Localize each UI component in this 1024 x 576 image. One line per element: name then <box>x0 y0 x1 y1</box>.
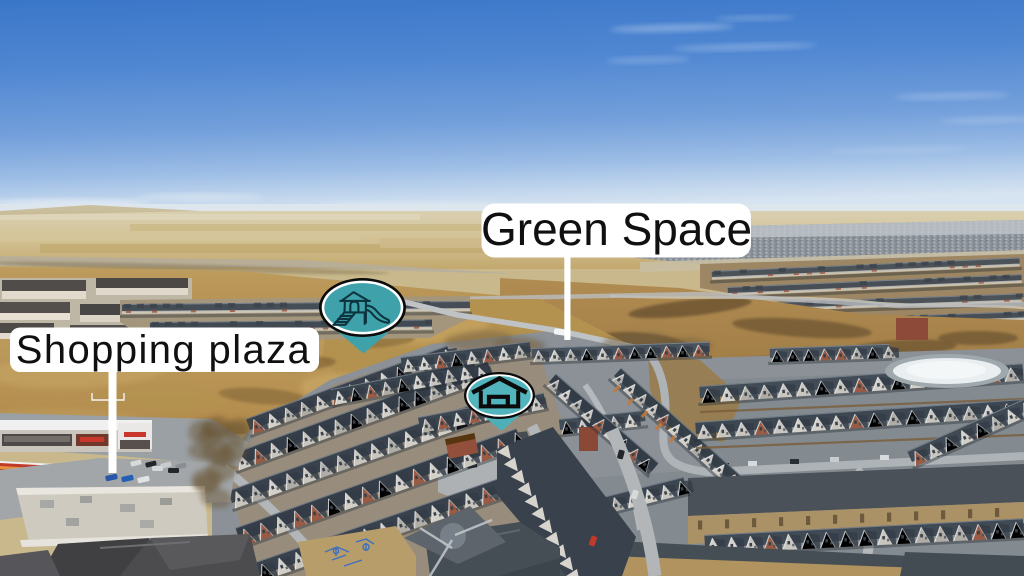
svg-text:Green Space: Green Space <box>481 203 752 255</box>
svg-text:Shopping plaza: Shopping plaza <box>16 328 311 372</box>
